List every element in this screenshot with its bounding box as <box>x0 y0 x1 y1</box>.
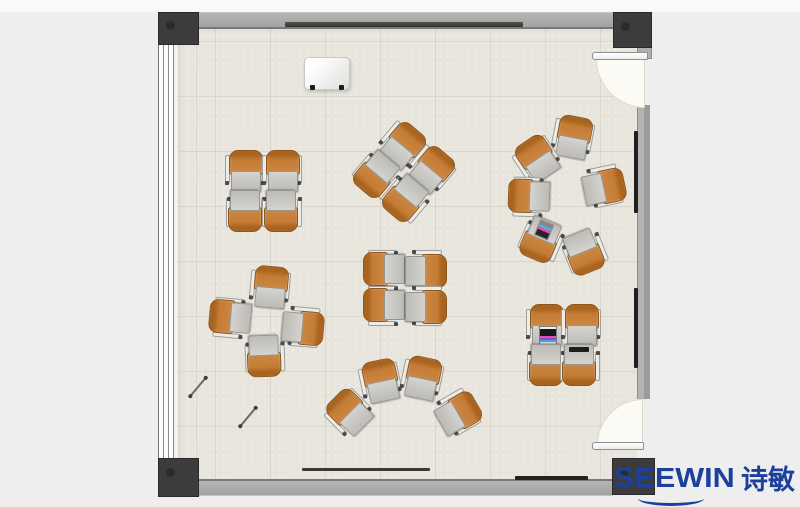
desk-chair-unit <box>251 265 288 308</box>
desk-top <box>405 292 426 322</box>
desk-top <box>384 254 405 284</box>
tablet-on-desk <box>569 347 589 352</box>
mobile-podium <box>304 57 350 90</box>
desk-chair-unit <box>228 150 262 190</box>
door-leaf-bottom-right <box>592 442 644 450</box>
logo-chinese-name: 诗敏 <box>741 465 795 495</box>
desk-top <box>529 181 551 212</box>
bottom-wall <box>197 479 613 496</box>
classroom-plan <box>0 0 800 507</box>
right-wall <box>637 105 650 399</box>
desk-top <box>230 190 260 211</box>
brand-logo: SEEWIN 诗敏 <box>614 465 795 495</box>
desk-top <box>531 344 561 365</box>
whiteboard-top-wall <box>285 22 523 27</box>
laptop-on-desk <box>539 326 557 345</box>
desk-chair-unit <box>359 357 401 403</box>
column-top-right <box>613 12 652 48</box>
desk-chair-unit <box>229 192 263 232</box>
desk-chair-unit <box>265 192 299 232</box>
desk-top <box>384 290 405 320</box>
desk-top <box>567 325 597 346</box>
bottom-wall-rail-left <box>302 468 430 471</box>
desk-top <box>405 256 426 286</box>
desk-top <box>268 171 298 192</box>
logo-swoosh-icon <box>638 491 704 506</box>
desk-chair-unit <box>401 354 443 400</box>
column-bottom-left <box>158 458 199 497</box>
desk-chair-unit <box>363 289 403 323</box>
desk-chair-unit <box>363 253 403 287</box>
desk-top <box>248 335 279 357</box>
bottom-wall-rail-right <box>515 476 588 480</box>
desk-chair-unit <box>407 289 447 323</box>
right-wall-panel-upper <box>634 131 638 213</box>
floorplan-canvas: SEEWIN 诗敏 <box>0 0 800 507</box>
left-window-wall <box>158 43 178 458</box>
desk-chair-unit <box>283 308 326 345</box>
desk-top <box>254 286 286 310</box>
podium-caster <box>310 85 315 90</box>
desk-chair-unit <box>552 113 593 159</box>
right-wall-panel-lower <box>634 288 638 368</box>
podium-caster <box>339 85 344 90</box>
desk-chair-unit <box>530 346 564 386</box>
desk-chair-unit <box>507 179 548 214</box>
desk-chair-unit <box>208 299 251 336</box>
desk-chair-unit <box>582 165 628 207</box>
desk-chair-unit <box>247 336 282 377</box>
logo-wordmark: SEEWIN <box>614 465 735 493</box>
column-top-left <box>158 12 199 45</box>
desk-top <box>229 302 253 334</box>
desk-chair-unit <box>265 150 299 190</box>
door-leaf-top-right <box>592 52 648 60</box>
desk-top <box>266 190 296 211</box>
desk-chair-unit <box>529 304 563 344</box>
desk-top <box>231 171 261 192</box>
desk-chair-unit <box>563 346 597 386</box>
desk-chair-unit <box>407 253 447 287</box>
desk-chair-unit <box>564 304 598 344</box>
desk-top <box>281 311 305 343</box>
